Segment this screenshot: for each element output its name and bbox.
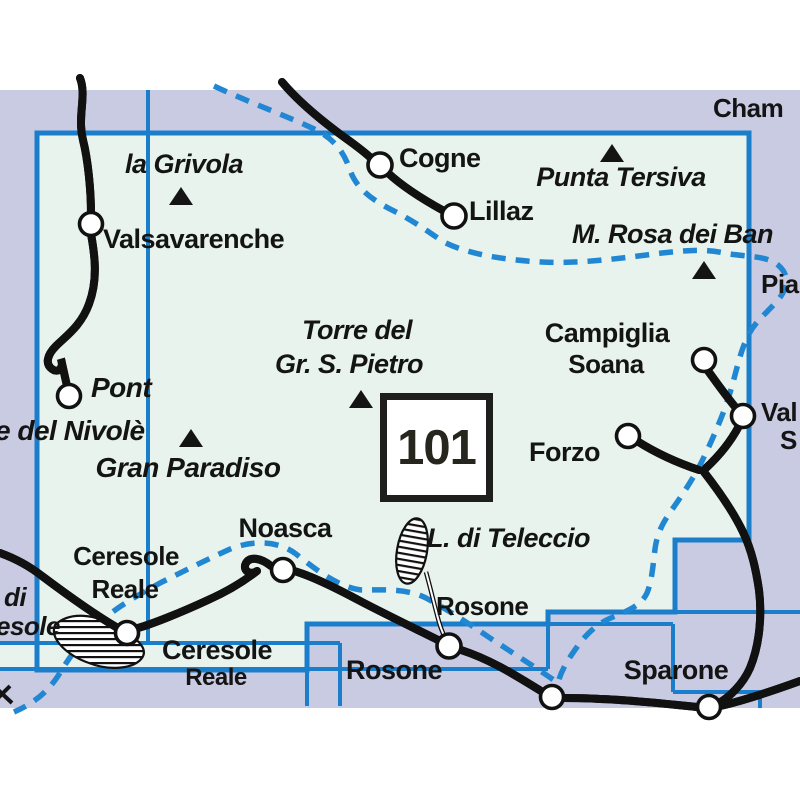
town-circle-val-junction [732,405,755,428]
label-ceresole-reale-2a: Ceresole [162,637,272,664]
label-pont: Pont [91,374,151,402]
label-sparone: Sparone [624,657,729,684]
label-val-cut: Val [761,399,797,425]
town-circle-noasca [272,559,295,582]
label-forzo: Forzo [529,439,600,466]
label-valsavarenche: Valsavarenche [103,226,284,253]
label-di-cut: di [4,584,26,610]
label-s-cut: S [780,427,797,453]
label-la-grivola: la Grivola [125,151,243,178]
label-torre-line1: Torre del [302,317,412,344]
label-cogne: Cogne [399,145,481,172]
label-lillaz: Lillaz [469,198,534,225]
map-index-page: Cham la Grivola Valsavarenche Cogne Lill… [0,0,800,800]
label-torre-line2: Gr. S. Pietro [275,351,423,378]
sheet-number-box: 101 [380,393,493,502]
town-circle-pont [58,385,81,408]
label-campiglia: Campiglia [545,320,670,347]
label-rosone-2: Rosone [346,657,442,684]
town-circle-cogne [368,153,392,177]
label-nivole-cut: e del Nivolè [0,417,145,445]
label-noasca: Noasca [238,515,331,542]
town-circle-ceresole [116,622,139,645]
sheet-number: 101 [397,420,476,476]
town-circle-campiglia [693,349,716,372]
label-m-rosa-dei-banchi: M. Rosa dei Ban [572,221,773,248]
label-pia: Pia [761,271,799,297]
label-gran-paradiso: Gran Paradiso [96,454,281,482]
label-punta-tersiva: Punta Tersiva [536,164,706,191]
label-ceresole-reale-1a: Ceresole [73,543,179,569]
town-circle-forzo [617,425,640,448]
label-soana: Soana [568,351,644,377]
label-lago-teleccio: L. di Teleccio [427,525,590,552]
label-rosone-1: Rosone [436,593,528,619]
town-circle-bottom-mid [541,686,564,709]
label-esole-cut: esole [0,613,60,639]
sheet-strip [0,644,40,669]
label-cham: Cham [713,95,783,121]
town-circle-valsavarenche [80,213,103,236]
town-circle-bottom-right [698,696,721,719]
label-ceresole-reale-2b: Reale [185,666,247,690]
town-circle-lillaz [442,204,466,228]
label-ceresole-reale-1b: Reale [92,576,159,602]
